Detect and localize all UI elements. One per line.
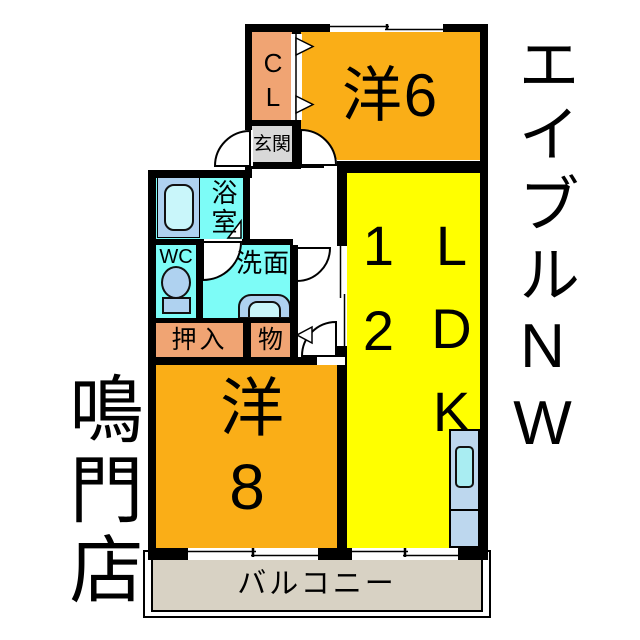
balcony-label: バルコニー xyxy=(237,570,396,599)
caption-company-vertical: エイブルNW xyxy=(503,32,573,466)
wall-top xyxy=(245,24,488,32)
room-storage-label: 物 xyxy=(258,328,283,353)
wall-bottom xyxy=(148,548,488,560)
room-washroom-label: 洗面 xyxy=(236,250,290,276)
wall-left-lower xyxy=(148,176,156,560)
room-oshiire-label: 押入 xyxy=(171,328,227,353)
floorplan-canvas: 洋6 押入 物 バルコニー xyxy=(0,0,640,640)
room-oshiire-closet: 押入 xyxy=(156,323,243,357)
wall-washroom-right xyxy=(290,245,298,365)
wall-ldk-left xyxy=(337,161,347,548)
room-storage: 物 xyxy=(251,323,290,357)
room-western-6-label: 洋6 xyxy=(342,66,439,126)
western8-door-swing-icon xyxy=(302,322,336,356)
wall-left-upper xyxy=(245,24,252,170)
room-western-6: 洋6 xyxy=(301,32,480,160)
corridor-door-swing-icon xyxy=(297,248,330,281)
room-ldk-label: LDK xyxy=(424,214,479,463)
room-entry-label: 玄関 xyxy=(252,133,292,155)
wall-bath-right xyxy=(243,176,250,239)
wall-ldk-top xyxy=(337,161,488,173)
kitchen-counter-divider xyxy=(449,509,480,511)
room-ldk-size-label: 12 xyxy=(351,214,406,384)
washbasin-bowl-icon xyxy=(248,301,281,319)
room-wc-label: WC xyxy=(154,246,198,268)
toilet-tank-icon xyxy=(162,297,191,314)
western6-door-opening xyxy=(324,159,337,168)
western8-door-arrow-icon xyxy=(297,327,312,343)
wall-step-top xyxy=(148,170,252,178)
wall-bath-bottom xyxy=(148,239,293,245)
wall-cl-right xyxy=(292,24,301,160)
wall-genkan-bottom xyxy=(245,162,301,169)
wall-oshiire-divider xyxy=(243,323,251,357)
room-bathroom-label: 浴室 xyxy=(209,179,236,237)
room-cl-label: CL xyxy=(259,48,286,116)
wall-washroom-bottom xyxy=(148,318,293,323)
bathtub-basin-icon xyxy=(164,184,194,231)
toilet-bowl-icon xyxy=(161,266,191,299)
balcony: バルコニー xyxy=(151,557,483,612)
wall-western8-top xyxy=(148,357,345,365)
room-western-8-label: 洋8 xyxy=(214,374,279,536)
wall-cl-genkan-divider xyxy=(252,120,292,126)
caption-branch-vertical: 鳴門店 xyxy=(59,371,137,611)
